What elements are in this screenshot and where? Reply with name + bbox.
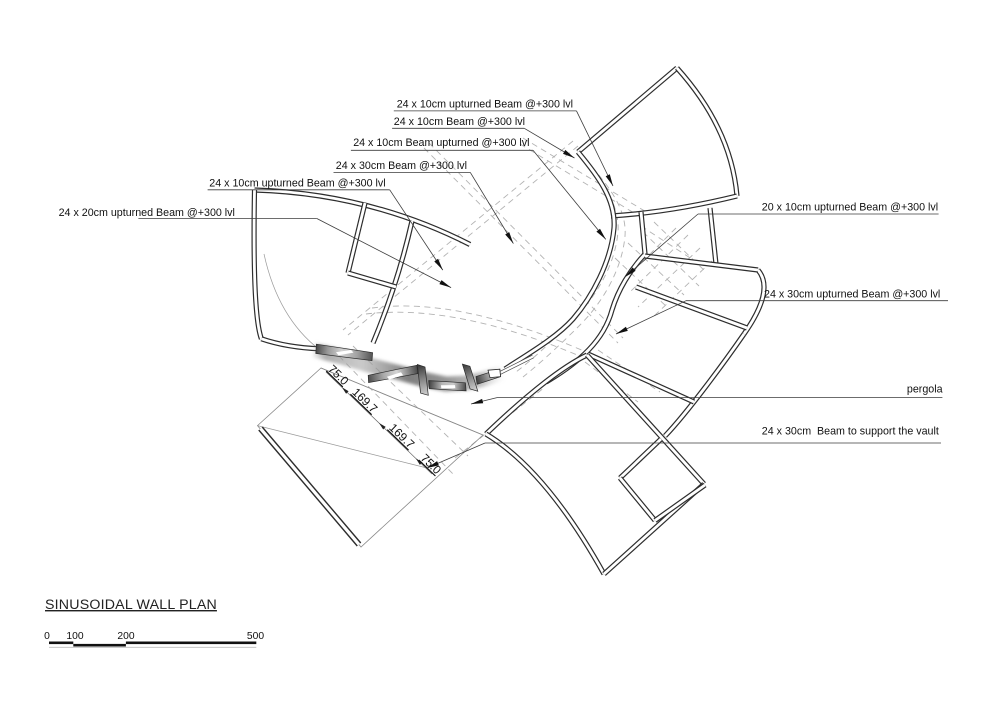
svg-text:24 x 10cm upturned Beam @+300: 24 x 10cm upturned Beam @+300 lvl [209,177,385,189]
svg-text:500: 500 [247,631,264,642]
svg-text:200: 200 [117,631,134,642]
svg-text:pergola: pergola [907,384,943,396]
svg-text:0: 0 [44,631,50,642]
svg-text:24 x 10cm upturned Beam @+300: 24 x 10cm upturned Beam @+300 lvl [397,98,573,110]
svg-text:24 x 10cm Beam upturned @+300: 24 x 10cm Beam upturned @+300 lvl [353,137,529,149]
svg-text:24 x 30cm Beam to support the: 24 x 30cm Beam to support the vault [762,426,939,438]
svg-text:20 x 10cm upturned Beam @+300: 20 x 10cm upturned Beam @+300 lvl [762,202,938,214]
svg-text:100: 100 [66,631,83,642]
svg-text:24 x 10cm Beam @+300 lvl: 24 x 10cm Beam @+300 lvl [394,116,525,128]
svg-text:24 x 20cm upturned Beam @+300: 24 x 20cm upturned Beam @+300 lvl [59,207,235,219]
svg-text:24 x 30cm Beam @+300 lvl: 24 x 30cm Beam @+300 lvl [336,160,467,172]
svg-text:24 x 30cm upturned Beam @+300: 24 x 30cm upturned Beam @+300 lvl [764,289,940,301]
svg-text:SINUSOIDAL WALL PLAN: SINUSOIDAL WALL PLAN [45,597,217,613]
